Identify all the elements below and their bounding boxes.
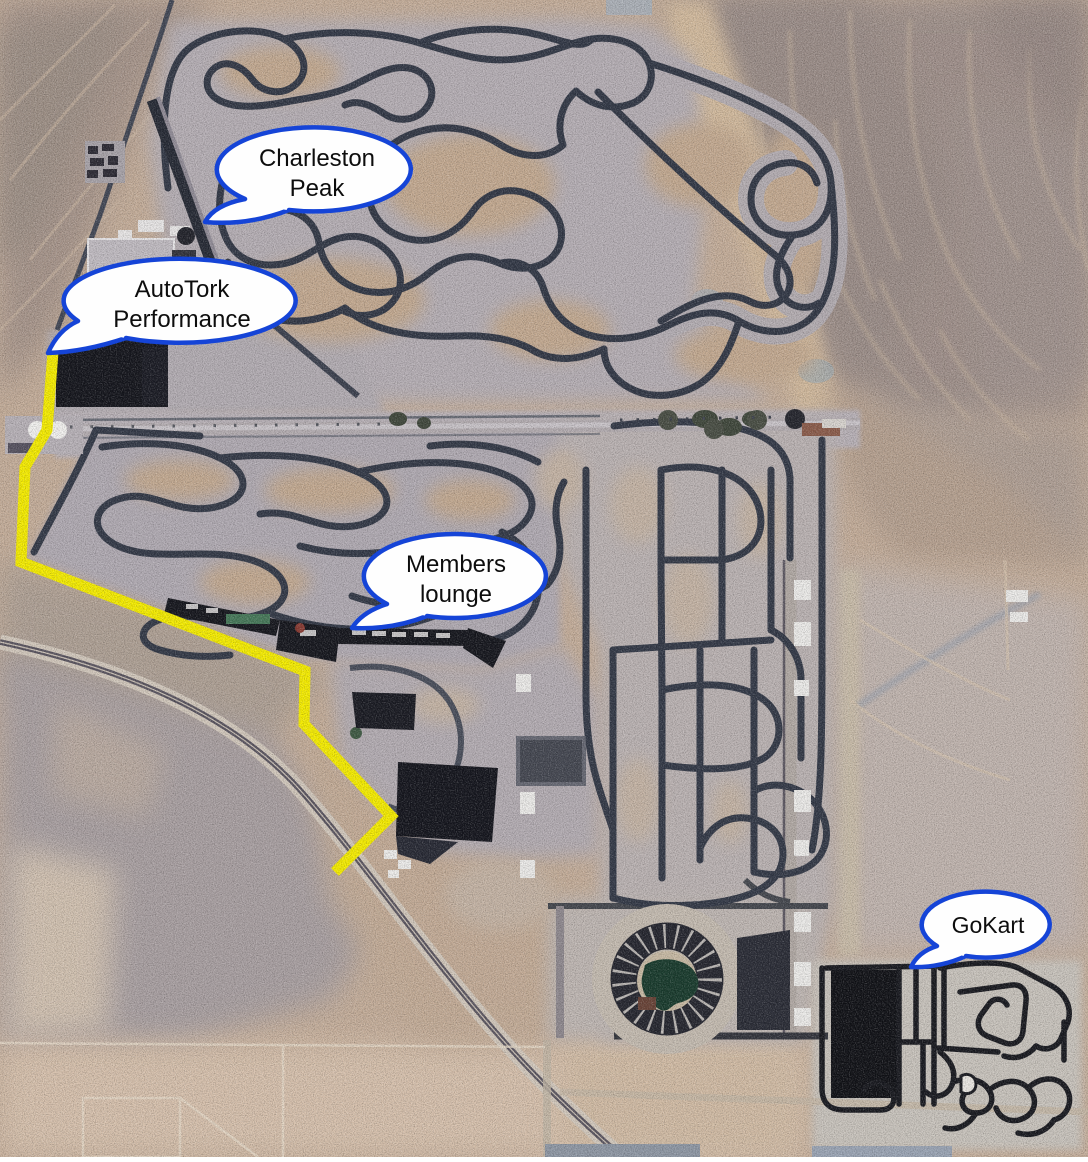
svg-text:Performance: Performance xyxy=(113,306,250,333)
svg-text:AutoTork: AutoTork xyxy=(135,276,231,303)
svg-text:lounge: lounge xyxy=(420,581,492,608)
svg-text:Members: Members xyxy=(406,551,506,578)
svg-text:Peak: Peak xyxy=(290,175,346,202)
svg-text:GoKart: GoKart xyxy=(952,912,1025,938)
svg-text:Charleston: Charleston xyxy=(259,145,375,172)
